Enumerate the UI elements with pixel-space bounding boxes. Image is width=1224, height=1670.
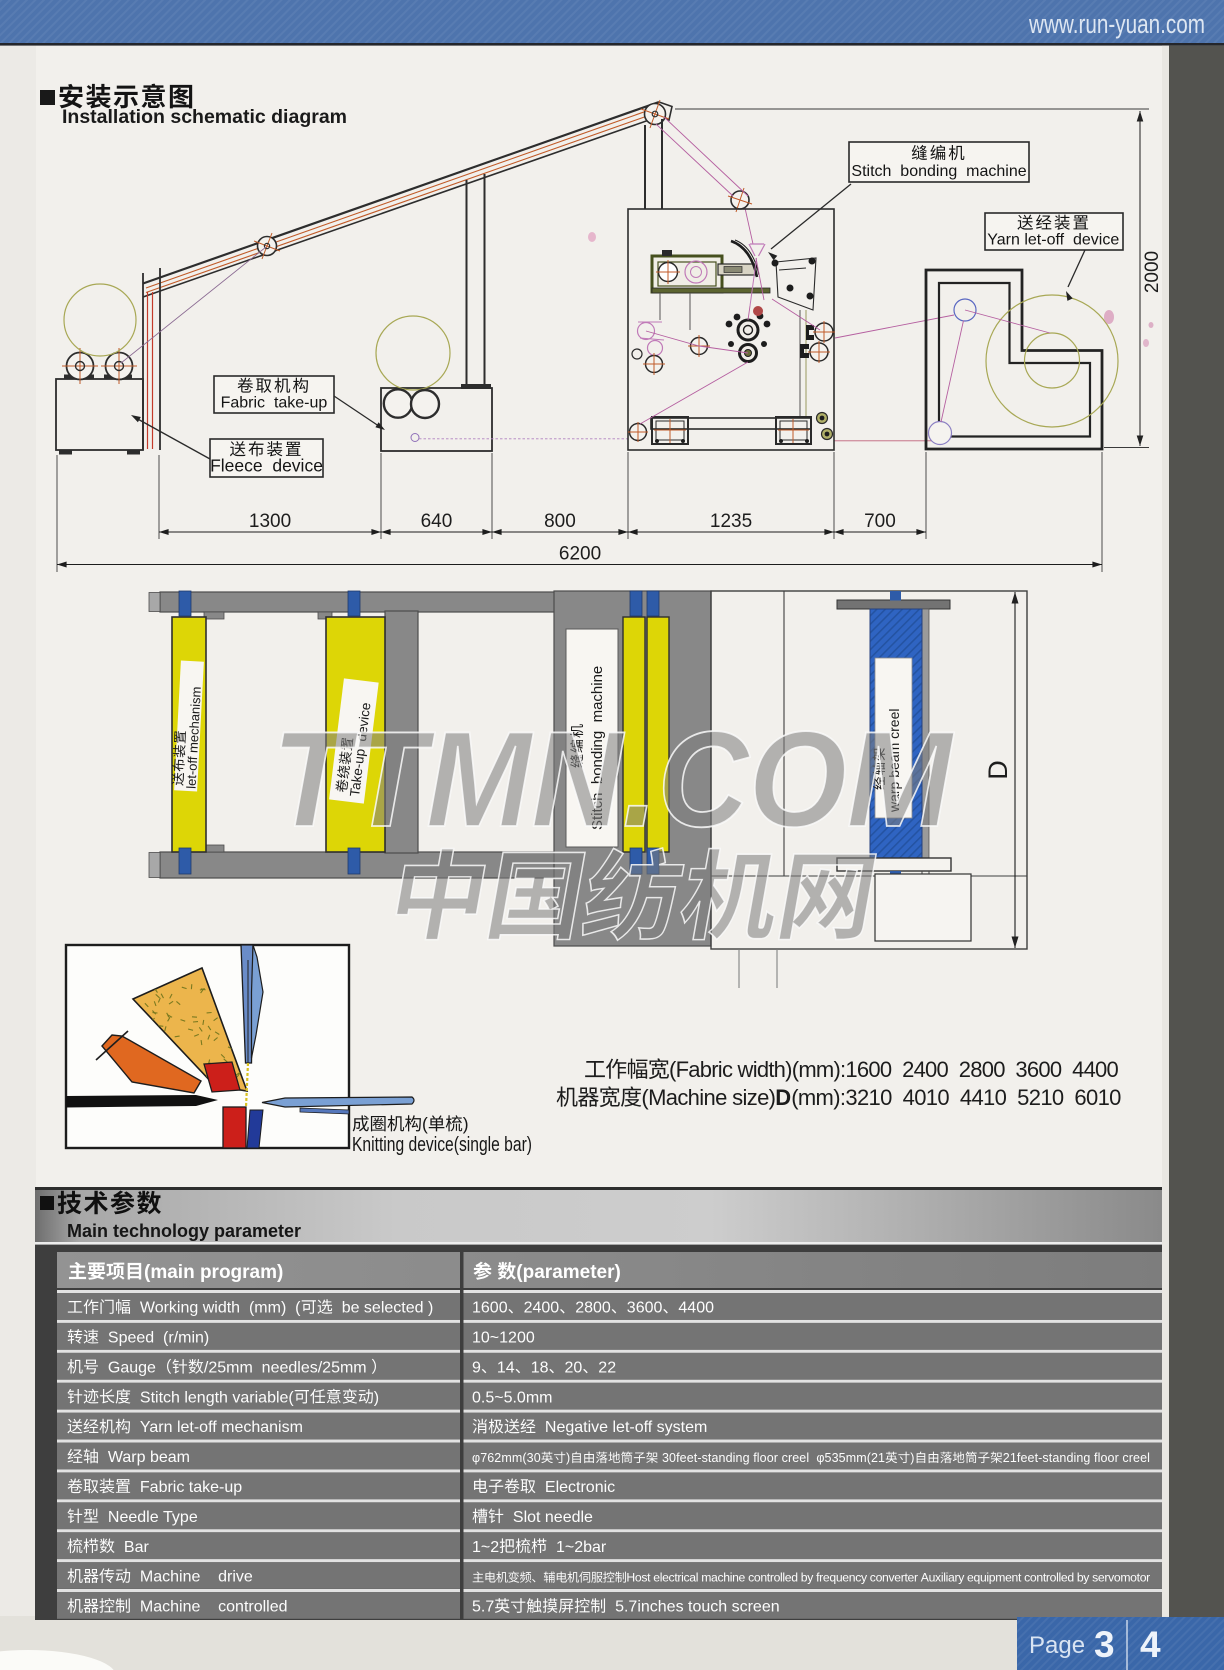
svg-text:Bar: Bar: [115, 1539, 149, 1556]
svg-text:Speed (r/min): Speed (r/min): [99, 1330, 209, 1347]
svg-text:Stitch length variable(: Stitch length variable(: [131, 1389, 294, 1406]
svg-text:3600: 3600: [627, 1300, 663, 1317]
svg-text:Knitting device(single bar): Knitting device(single bar): [352, 1134, 532, 1156]
svg-text:1235: 1235: [710, 511, 752, 532]
svg-text:Machine drive: Machine drive: [131, 1569, 253, 1586]
svg-text:2400: 2400: [524, 1300, 560, 1317]
svg-text:Fleece device: Fleece device: [210, 455, 323, 475]
svg-text:1~2: 1~2: [472, 1539, 499, 1556]
svg-text:Needle Type: Needle Type: [99, 1509, 198, 1526]
svg-text:Slot needle: Slot needle: [504, 1509, 593, 1526]
svg-text:(main program): (main program): [144, 1262, 283, 1283]
svg-text:Working width (mm) (: Working width (mm) (: [131, 1300, 301, 1317]
svg-text:(: (: [422, 1114, 428, 1134]
svg-text:22: 22: [598, 1359, 616, 1376]
svg-text:700: 700: [864, 511, 896, 532]
svg-text:21feet-standing floor creel: 21feet-standing floor creel: [1003, 1451, 1150, 1465]
svg-text:Electronic: Electronic: [536, 1479, 615, 1496]
svg-text:): ): [910, 1451, 914, 1465]
svg-text:640: 640: [421, 511, 453, 532]
svg-text:Yarn let-off mechanism: Yarn let-off mechanism: [131, 1419, 303, 1436]
svg-text:5.7inches touch screen: 5.7inches touch screen: [606, 1599, 779, 1616]
svg-text:(mm):3210 4010 4410 5210 6: (mm):3210 4010 4410 5210 6010: [791, 1085, 1121, 1110]
svg-text:Gauge: Gauge: [99, 1359, 156, 1376]
svg-text:1~2bar: 1~2bar: [547, 1539, 607, 1556]
svg-text:9: 9: [472, 1359, 481, 1376]
svg-text:Machine controlled: Machine controlled: [131, 1599, 288, 1616]
svg-text:4: 4: [1140, 1624, 1161, 1665]
svg-text:20: 20: [565, 1359, 583, 1376]
svg-text:Negative let-off system: Negative let-off system: [536, 1419, 707, 1436]
svg-text:Host electrical machine contro: Host electrical machine controlled by fr…: [626, 1571, 1150, 1585]
svg-text:Stitch bonding machine: Stitch bonding machine: [851, 163, 1026, 180]
svg-text:3: 3: [1094, 1624, 1115, 1665]
svg-text:/25mm needles/25mm: /25mm needles/25mm: [204, 1359, 371, 1376]
svg-text:0.5~5.0mm: 0.5~5.0mm: [472, 1389, 552, 1406]
svg-text:2000: 2000: [1142, 251, 1163, 293]
svg-text:Warp beam: Warp beam: [99, 1449, 190, 1466]
svg-text:4400: 4400: [678, 1300, 714, 1317]
svg-text:10~1200: 10~1200: [472, 1330, 535, 1347]
svg-text:(Fabric width)(mm):1600 2400: (Fabric width)(mm):1600 2400 2800 3600 4…: [669, 1057, 1119, 1082]
svg-text:TTMN.COM: TTMN.COM: [272, 703, 955, 855]
svg-text:): ): [566, 1451, 570, 1465]
svg-text:Main technology parameter: Main technology parameter: [67, 1221, 301, 1241]
svg-text:be selected ): be selected ): [333, 1300, 434, 1317]
svg-text:800: 800: [544, 511, 576, 532]
svg-text:Fabric take-up: Fabric take-up: [131, 1479, 242, 1496]
svg-text:2800: 2800: [575, 1300, 611, 1317]
svg-text:5.7: 5.7: [472, 1599, 494, 1616]
svg-text:φ762mm(30: φ762mm(30: [472, 1451, 541, 1465]
svg-text:6200: 6200: [559, 544, 601, 565]
svg-text:1300: 1300: [249, 511, 291, 532]
svg-text:): ): [463, 1114, 469, 1134]
svg-text:18: 18: [531, 1359, 549, 1376]
svg-text:Yarn let-off device: Yarn let-off device: [987, 231, 1119, 248]
svg-text:): ): [374, 1389, 379, 1406]
svg-text:www.run-yuan.com: www.run-yuan.com: [1028, 9, 1205, 39]
svg-text:Fabric take-up: Fabric take-up: [221, 394, 328, 411]
svg-text:Installation schematic diagram: Installation schematic diagram: [62, 106, 347, 128]
svg-text:D: D: [983, 760, 1013, 780]
svg-text:(Machine size): (Machine size): [641, 1085, 775, 1110]
svg-text:D: D: [775, 1085, 791, 1110]
svg-text:Page: Page: [1029, 1632, 1085, 1659]
svg-text:14: 14: [497, 1359, 515, 1376]
svg-text:30feet-standing floor creel φ: 30feet-standing floor creel φ535mm(21: [658, 1451, 885, 1465]
svg-text:(parameter): (parameter): [516, 1262, 621, 1283]
svg-text:1600: 1600: [472, 1300, 508, 1317]
